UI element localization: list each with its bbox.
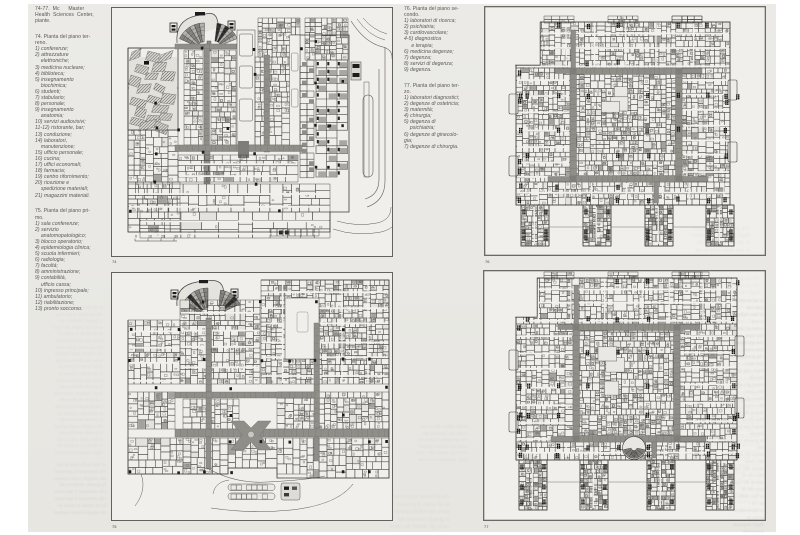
svg-text:0: 0 — [135, 235, 137, 239]
svg-text:10: 10 — [148, 235, 152, 239]
svg-text:30: 30 — [174, 235, 178, 239]
svg-text:20: 20 — [161, 235, 165, 239]
